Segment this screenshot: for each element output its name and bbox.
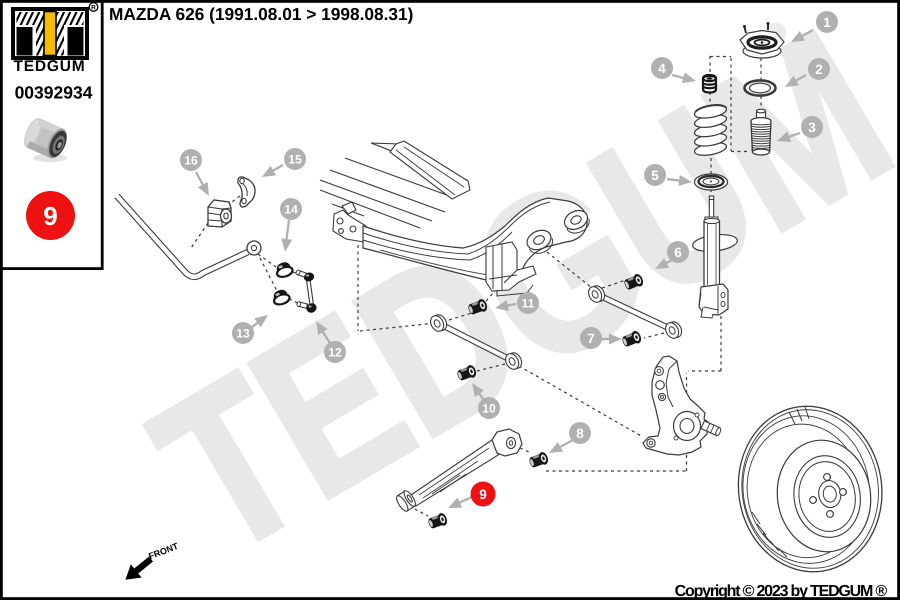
svg-text:16: 16 [184, 153, 198, 167]
svg-text:10: 10 [482, 401, 496, 415]
svg-text:7: 7 [587, 331, 595, 346]
svg-text:13: 13 [236, 326, 250, 340]
svg-text:15: 15 [288, 152, 302, 166]
svg-text:9: 9 [43, 201, 57, 231]
svg-text:6: 6 [674, 245, 682, 260]
svg-text:11: 11 [522, 296, 535, 310]
svg-text:MAZDA 626 (1991.08.01 > 1998.0: MAZDA 626 (1991.08.01 > 1998.08.31) [109, 4, 413, 24]
svg-text:5: 5 [651, 168, 659, 183]
svg-text:4: 4 [658, 61, 666, 76]
svg-text:2: 2 [815, 62, 823, 77]
svg-text:TEDGUM: TEDGUM [14, 58, 86, 75]
svg-text:14: 14 [284, 202, 298, 216]
svg-text:Copyright © 2023 by TEDGUM ®: Copyright © 2023 by TEDGUM ® [675, 583, 888, 600]
svg-text:9: 9 [479, 487, 487, 502]
svg-text:12: 12 [328, 345, 342, 359]
svg-text:3: 3 [808, 120, 816, 135]
svg-text:R: R [91, 5, 96, 12]
svg-text:1: 1 [823, 15, 831, 30]
svg-text:8: 8 [576, 426, 584, 441]
svg-text:00392934: 00392934 [15, 83, 93, 103]
